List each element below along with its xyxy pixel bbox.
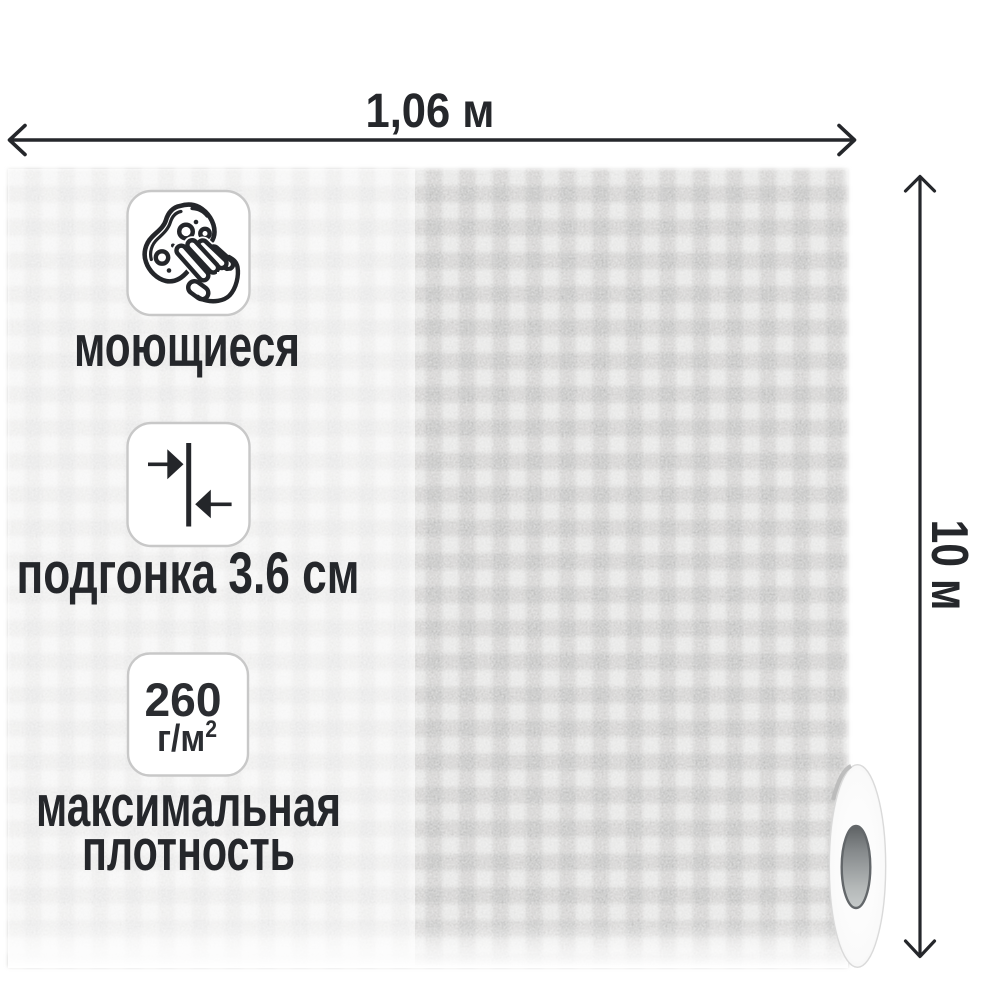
svg-text:подгонка 3.6 см: подгонка 3.6 см — [17, 541, 360, 606]
svg-text:1,06 м: 1,06 м — [366, 85, 495, 138]
svg-text:плотность: плотность — [82, 818, 295, 883]
svg-text:10 м: 10 м — [920, 520, 978, 611]
svg-text:моющиеся: моющиеся — [74, 314, 300, 379]
